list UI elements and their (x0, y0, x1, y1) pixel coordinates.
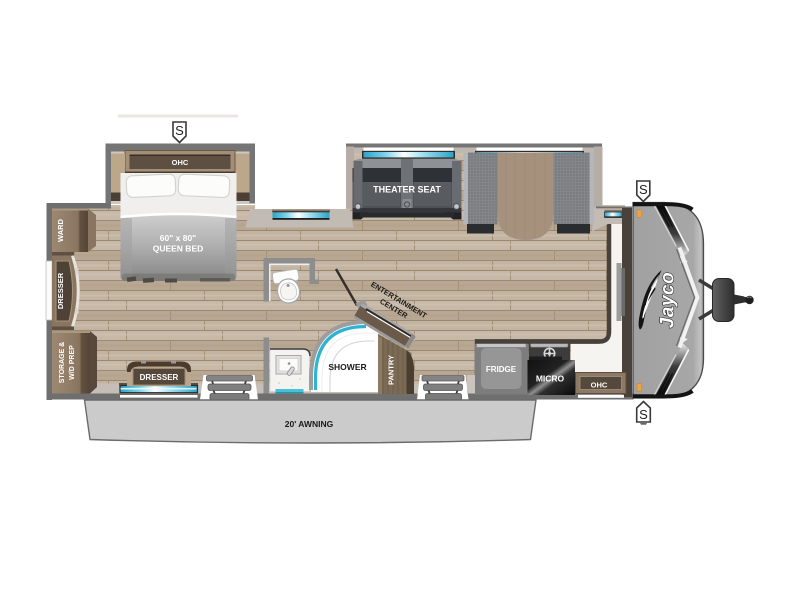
svg-text:OHC: OHC (172, 158, 189, 167)
svg-text:STORAGE &: STORAGE & (59, 342, 66, 384)
svg-text:DRESSER: DRESSER (56, 272, 65, 309)
svg-text:W/D PREP: W/D PREP (69, 345, 76, 380)
svg-text:OHC: OHC (591, 381, 608, 390)
svg-text:DRESSER: DRESSER (140, 373, 179, 382)
svg-text:S: S (639, 407, 648, 422)
svg-text:SHOWER: SHOWER (328, 362, 366, 372)
svg-text:QUEEN BED: QUEEN BED (153, 244, 204, 254)
svg-text:PANTRY: PANTRY (387, 355, 396, 385)
svg-text:60" x 80": 60" x 80" (160, 233, 196, 243)
svg-text:20' AWNING: 20' AWNING (285, 419, 334, 429)
svg-text:THEATER SEAT: THEATER SEAT (373, 185, 441, 195)
svg-text:FRIDGE: FRIDGE (486, 365, 517, 374)
svg-text:MICRO: MICRO (536, 374, 565, 384)
svg-text:S: S (175, 123, 184, 138)
svg-text:WARD: WARD (56, 218, 65, 241)
svg-text:S: S (639, 182, 648, 197)
svg-text:Jayco: Jayco (658, 272, 679, 328)
